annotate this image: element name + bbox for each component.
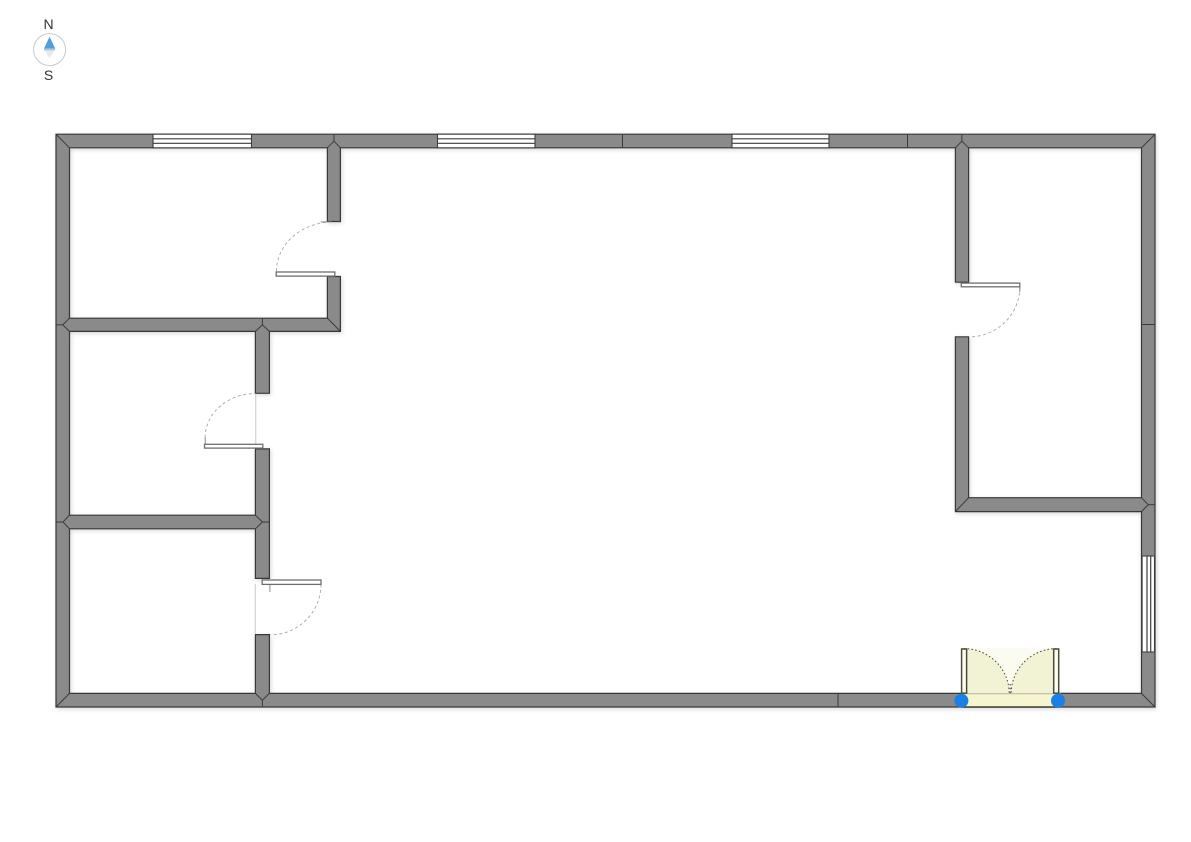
svg-text:N: N <box>44 16 54 32</box>
svg-text:S: S <box>44 67 53 83</box>
